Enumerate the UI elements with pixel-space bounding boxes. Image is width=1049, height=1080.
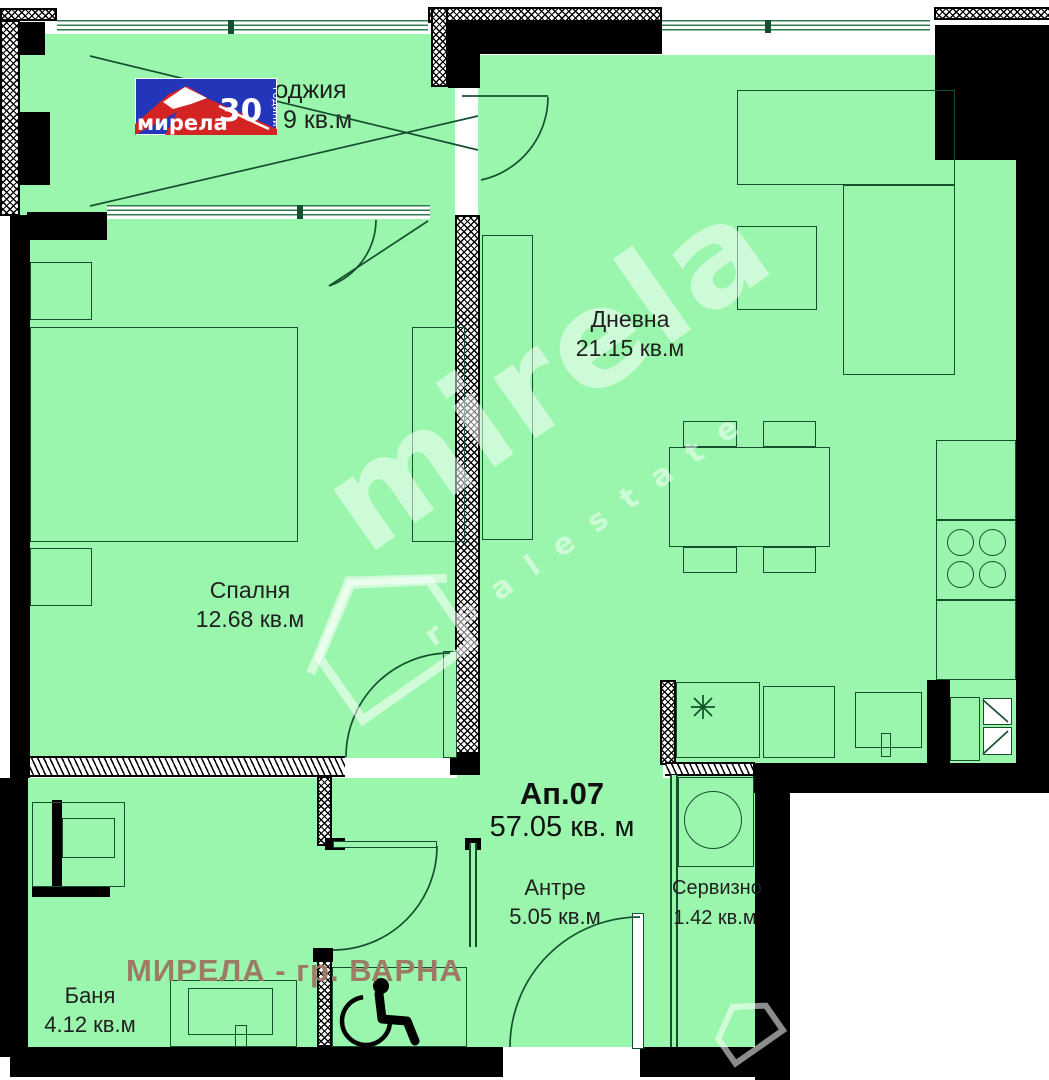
fridge-column [950,697,980,761]
window-mullion [297,205,303,219]
exterior-cutout [790,793,1049,1080]
nightstand [30,262,92,320]
wall-zigzag-service-top [665,762,755,776]
label-apartment-number: Ап.07 [462,777,662,811]
kitchen-appliance [763,686,835,758]
label-hall-name: Антре [485,873,625,902]
label-bathroom: Баня 4.12 кв.м [20,981,160,1039]
chair [683,547,737,573]
wall-top-step [448,54,480,88]
burner [979,529,1006,556]
label-bedroom-area: 12.68 кв.м [175,605,325,634]
wall-top-center [448,20,662,54]
wall-shower-horizontal [32,887,110,897]
label-hall: Антре 5.05 кв.м [485,873,625,931]
shower-tray [62,818,115,858]
bed [30,327,298,542]
label-bedroom-name: Спалня [175,576,325,605]
label-service-area: 1.42 кв.м [672,903,758,933]
wall-bedroom-left [10,215,30,778]
wall-hatched-top-right [934,7,1049,20]
label-living-name: Дневна [555,305,705,334]
burner [979,561,1006,588]
wall-bottom-mid [640,1047,757,1077]
label-apartment-area: 57.05 кв. м [462,811,662,844]
label-living: Дневна 21.15 кв.м [555,305,705,363]
wall-kitchen-corner [927,680,950,765]
nightstand [30,548,92,606]
sofa [737,90,955,185]
bathtub-handle [235,1025,247,1047]
sofa-chaise [843,185,955,375]
chair [763,547,816,573]
label-service: Сервизно 1.42 кв.м [672,873,758,933]
door-leaf-bathroom [333,841,437,848]
label-service-name: Сервизно [672,873,758,903]
kitchen-counter [936,440,1016,520]
agency-logo: мирела 30 години [135,78,277,135]
wall-right [1016,160,1049,767]
window-living [662,20,930,33]
wall-kitchen-bottom [753,763,1049,793]
chair [763,421,816,447]
armchair [737,226,817,310]
wardrobe [412,327,465,542]
wall-zigzag-bedroom-bottom [10,756,345,777]
kitchen-counter [936,600,1016,680]
dining-table [669,447,830,547]
floor-plan: mirela r e a l e s t a t e Лоджия 9 кв.м… [0,0,1049,1080]
wall-left-pillar [18,112,50,185]
closet [482,235,533,540]
stove [936,520,1016,600]
label-apartment: Ап.07 57.05 кв. м [462,777,662,844]
wall-hatched-bath-right-top [317,776,332,846]
wall-stub-hall [469,843,477,947]
burner [947,561,974,588]
door-leaf-bedroom [443,651,457,758]
wall-bottom-left [10,1047,503,1077]
wall-service-right [755,765,790,1080]
label-bedroom: Спалня 12.68 кв.м [175,576,325,634]
burner [947,529,974,556]
bathtub-inner [188,988,273,1035]
chair [683,421,737,447]
window-loggia [57,20,428,34]
wall-hatched-kitchen-left [660,680,676,765]
logo-brand-text: мирела [137,111,228,135]
wall-left-block-a [18,22,45,55]
door-leaf-entrance [632,913,644,1049]
agency-logo-graphic: мирела 30 години [135,78,277,135]
label-bathroom-area: 4.12 кв.м [20,1010,160,1039]
label-living-area: 21.15 кв.м [555,334,705,363]
sink-faucet [881,733,891,757]
label-loggia-area: 9 кв.м [283,106,352,135]
wall-hatched-left [0,20,20,216]
cabinet-flap [983,698,1012,725]
window-sill [662,33,930,53]
label-hall-area: 5.05 кв.м [485,902,625,931]
logo-years-number: 30 [219,93,262,129]
logo-years-word: години [270,87,277,127]
window-mullion [228,20,234,34]
cabinet-flap [983,727,1012,755]
kitchen-counter [676,682,760,758]
wall-hatched-loggia-right [431,7,448,87]
agency-city-text: МИРЕЛА - гр. ВАРНА [126,953,463,989]
window-mullion [765,20,771,33]
window-bedroom [107,205,430,219]
washing-machine-drum [684,791,742,849]
wall-bedroom-top-left [27,212,107,240]
